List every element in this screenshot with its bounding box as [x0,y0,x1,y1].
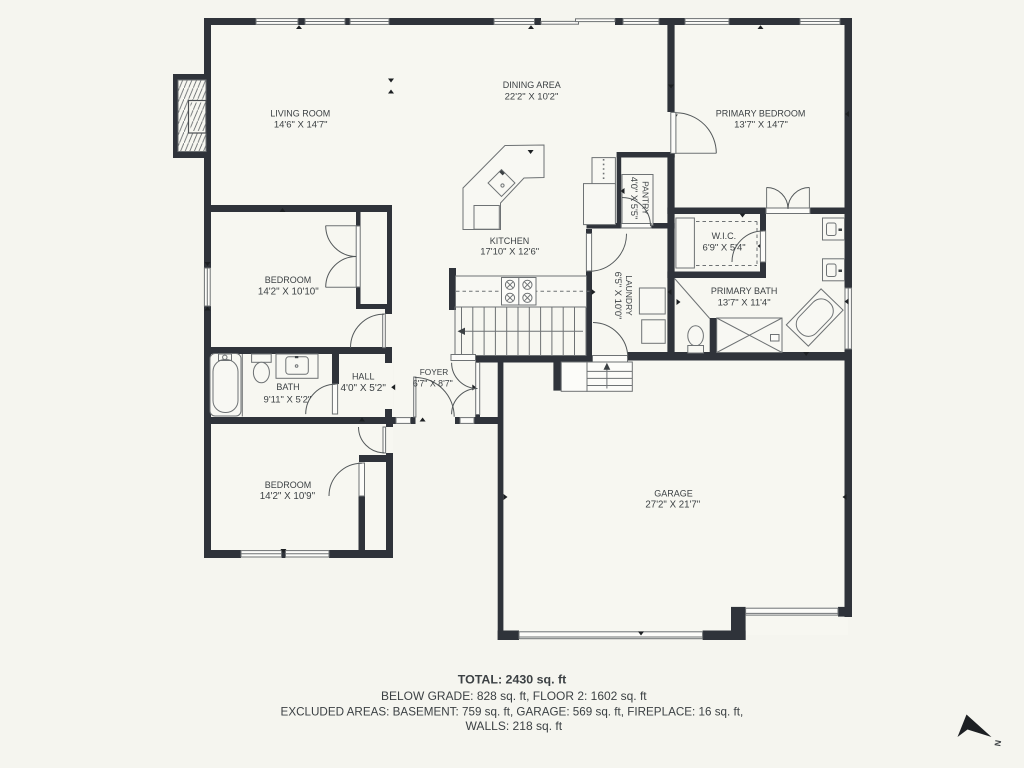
svg-text:27'2" X 21'7": 27'2" X 21'7" [645,500,700,511]
svg-text:14'2" X 10'10": 14'2" X 10'10" [258,287,319,298]
svg-text:GARAGE: GARAGE [654,489,693,499]
svg-text:17'10" X 12'6": 17'10" X 12'6" [480,247,539,258]
svg-text:W.I.C.: W.I.C. [712,231,737,241]
svg-text:BATH: BATH [276,382,299,392]
svg-text:13'7" X 14'7": 13'7" X 14'7" [734,120,788,131]
svg-text:13'7" X 11'4": 13'7" X 11'4" [718,297,771,308]
svg-text:9'11" X 5'2": 9'11" X 5'2" [264,394,312,405]
svg-text:BEDROOM: BEDROOM [265,480,312,490]
svg-text:6'9" X 5'4": 6'9" X 5'4" [703,242,746,253]
svg-text:BELOW GRADE: 828 sq. ft, FLOOR: BELOW GRADE: 828 sq. ft, FLOOR 2: 1602 s… [381,689,647,703]
svg-text:PANTRY4'0" X 5'5": PANTRY4'0" X 5'5" [629,177,650,220]
svg-text:4'0" X 5'2": 4'0" X 5'2" [341,383,387,394]
svg-text:LAUNDRY6'5" X 10'0": LAUNDRY6'5" X 10'0" [613,272,634,320]
svg-text:KITCHEN: KITCHEN [490,236,530,246]
svg-text:PRIMARY BEDROOM: PRIMARY BEDROOM [716,109,806,119]
svg-text:HALL: HALL [352,372,375,382]
svg-text:14'6" X 14'7": 14'6" X 14'7" [274,119,328,130]
svg-text:DINING AREA: DINING AREA [503,80,561,90]
svg-text:14'2" X 10'9": 14'2" X 10'9" [260,491,316,502]
svg-text:LIVING ROOM: LIVING ROOM [270,109,330,119]
svg-text:EXCLUDED AREAS: BASEMENT: 759: EXCLUDED AREAS: BASEMENT: 759 sq. ft, GA… [281,705,744,719]
svg-text:6'7" X 8'7": 6'7" X 8'7" [413,379,453,389]
svg-text:22'2" X 10'2": 22'2" X 10'2" [505,91,559,102]
svg-text:TOTAL: 2430 sq. ft: TOTAL: 2430 sq. ft [458,673,567,687]
svg-text:BEDROOM: BEDROOM [265,275,312,285]
svg-text:PRIMARY BATH: PRIMARY BATH [711,286,778,296]
svg-text:FOYER: FOYER [420,367,449,377]
svg-text:WALLS: 218 sq. ft: WALLS: 218 sq. ft [466,719,563,733]
